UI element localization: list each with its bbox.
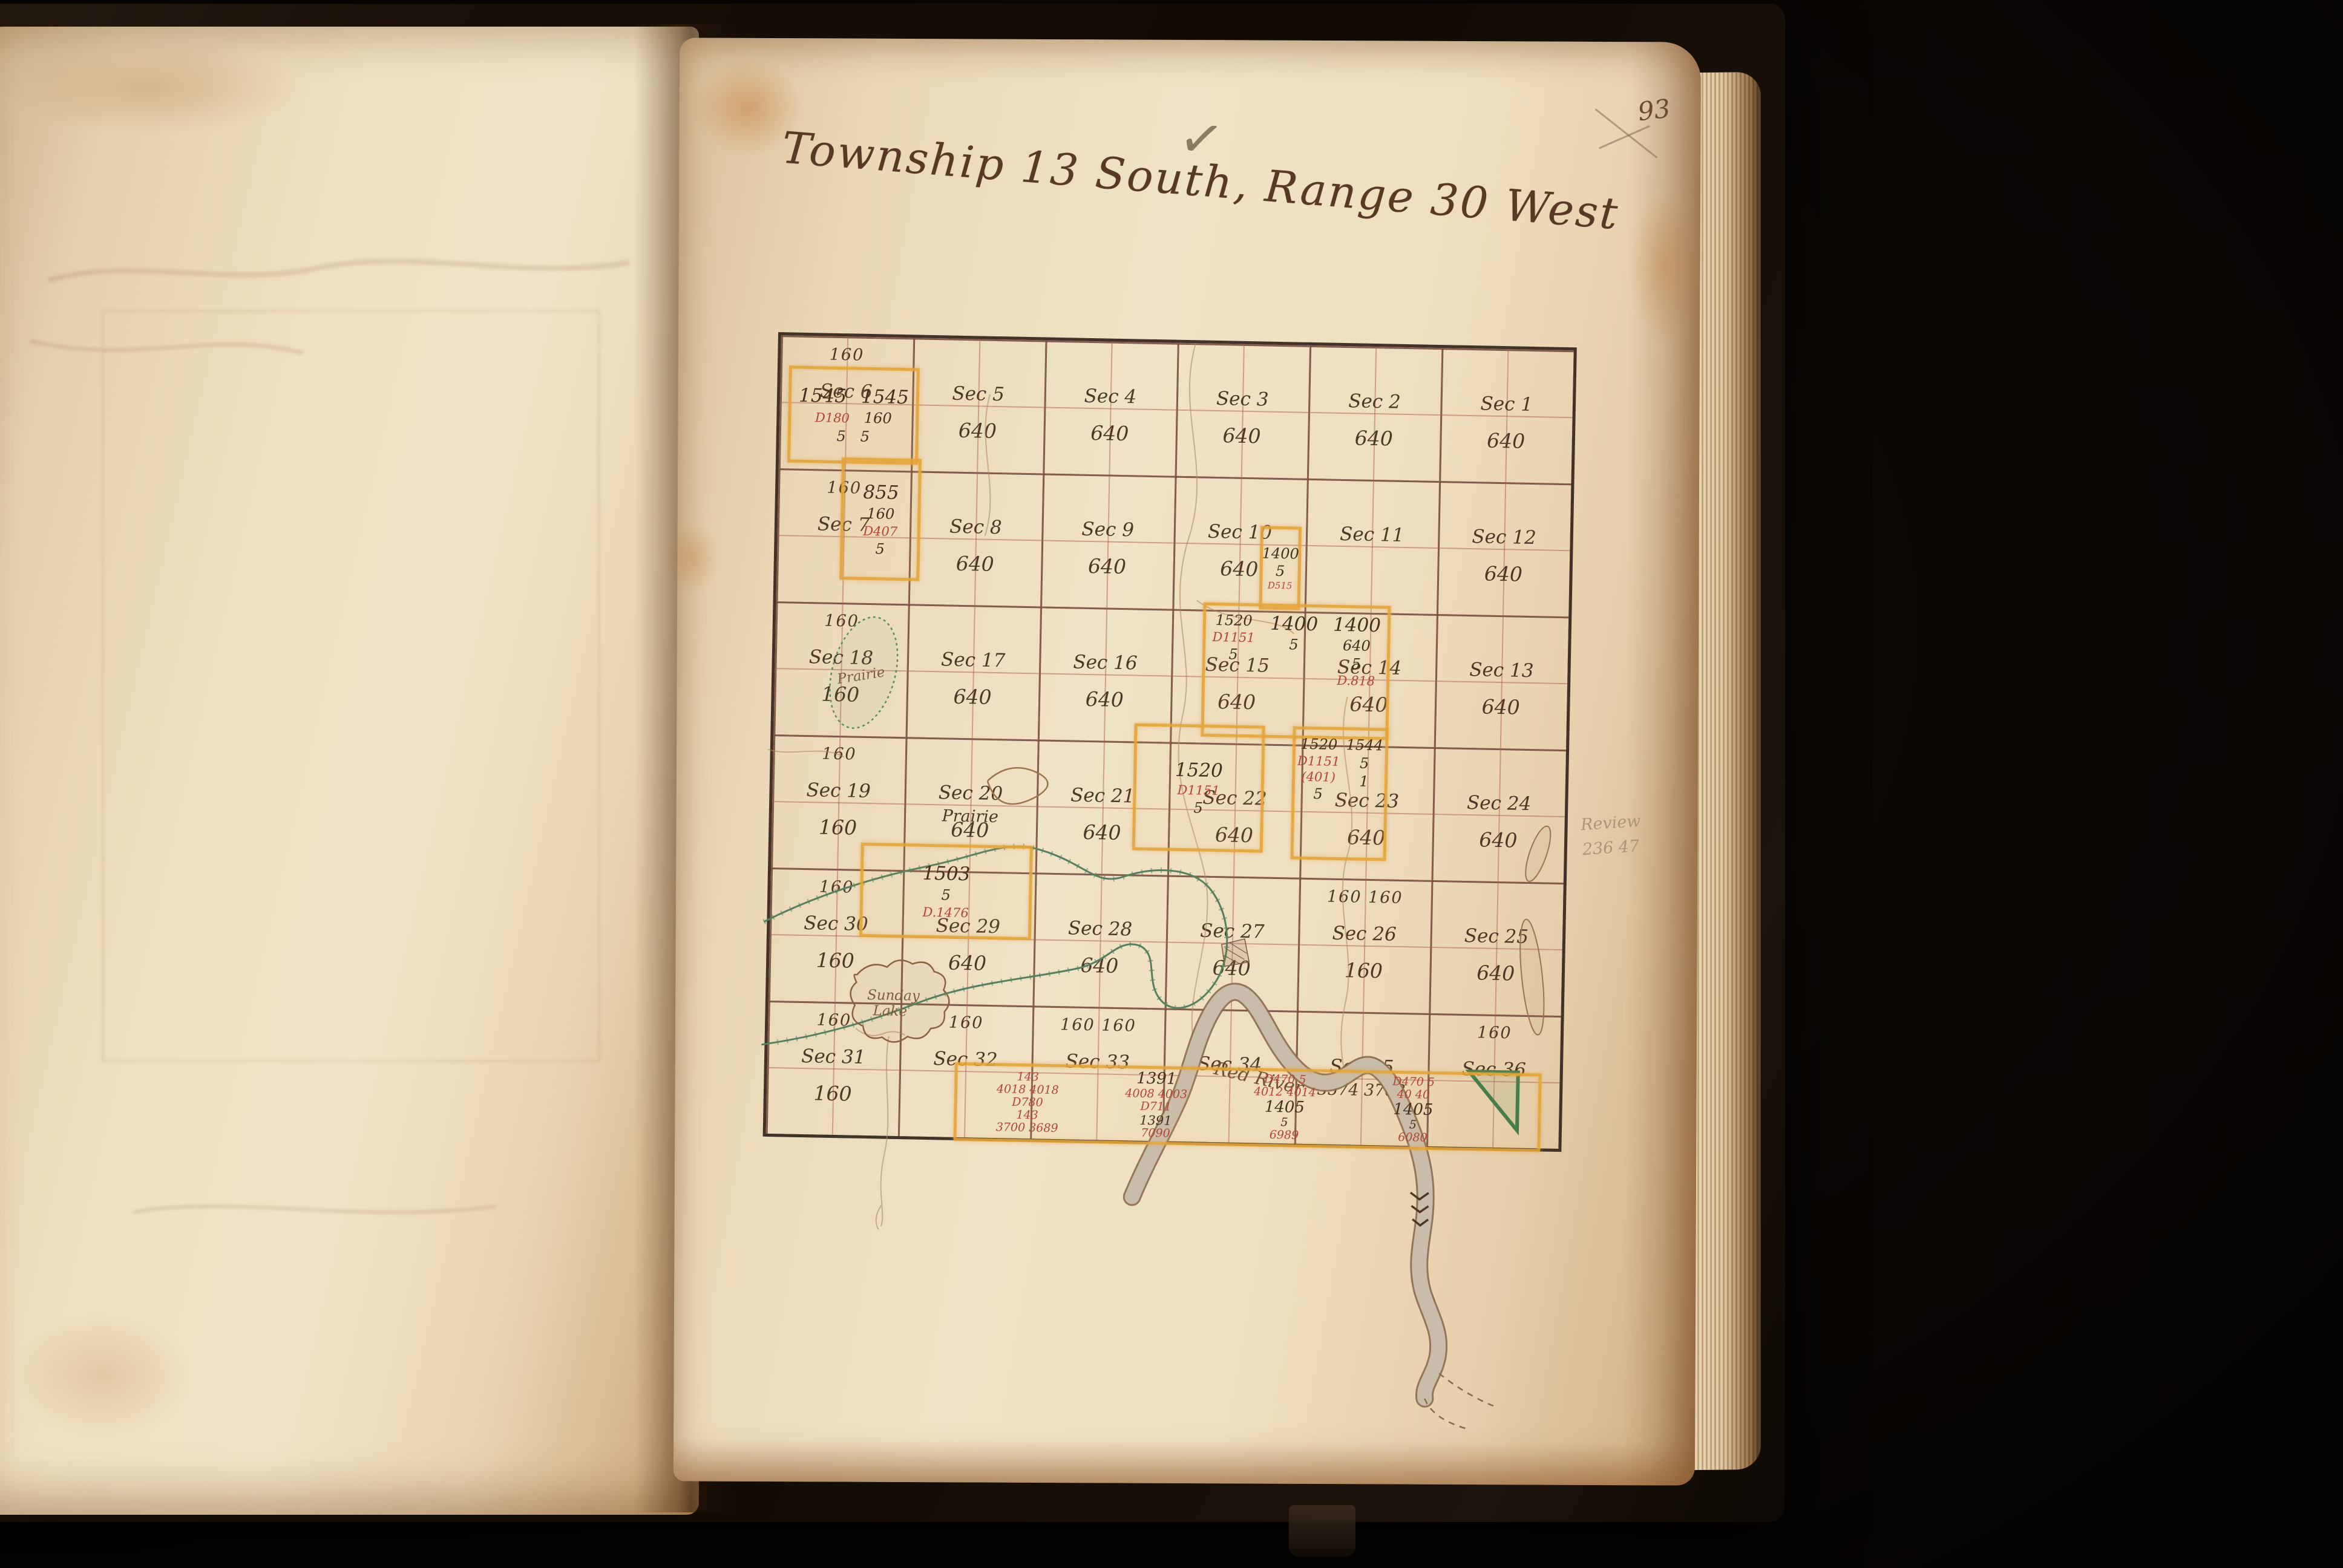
section-label: Sec 26 — [1298, 921, 1430, 946]
section-note — [1041, 543, 1173, 545]
section-label: Sec 12 — [1438, 525, 1570, 549]
section-cell: Sec 13 640 — [1434, 614, 1569, 750]
section-note — [767, 1070, 899, 1072]
strip-doc: D470 5 — [1264, 1074, 1306, 1086]
section-acreage: 160 — [767, 1080, 899, 1106]
section-label: Sec 24 — [1433, 791, 1565, 815]
strip-doc: D470 5 — [1392, 1076, 1435, 1089]
strip-total: 6989 — [1270, 1129, 1299, 1142]
claim-doc-number: D1151 — [1177, 783, 1220, 798]
section-note — [1039, 676, 1171, 678]
claim-column: 1544 5 1 — [1345, 736, 1383, 790]
claim-value: 1545 — [799, 385, 847, 408]
claim-column: 1520 D1151 5 — [1212, 612, 1256, 663]
strip-triangle-spacer — [1476, 1077, 1532, 1146]
claim-value: 1520 — [1215, 612, 1253, 629]
quarter-acreage: 160 160 — [1032, 1015, 1165, 1036]
section-note — [775, 670, 906, 673]
section-label: Sec 31 — [767, 1045, 900, 1069]
section-label: Sec 27 — [1166, 919, 1299, 943]
section-label: Sec 8 — [909, 515, 1042, 539]
section-acreage: 160 — [769, 947, 902, 973]
section-acreage: 640 — [1432, 827, 1564, 853]
section-cell: Sec 3 640 — [1175, 343, 1310, 479]
section-acreage: 640 — [1435, 694, 1567, 720]
quarter-acreage — [1040, 616, 1172, 618]
claim-value: 1400 — [1270, 613, 1319, 636]
quarter-acreage — [1045, 350, 1177, 352]
claim-value: 160 — [864, 410, 892, 427]
section-cell: 160 Sec 18 160 — [773, 601, 908, 737]
section-note — [1306, 547, 1438, 550]
section-label: Sec 19 — [772, 779, 905, 803]
section-note — [1308, 414, 1440, 417]
page-curl-shadow — [1622, 42, 1701, 1486]
section-label: Sec 2 — [1308, 389, 1441, 413]
section-note — [1433, 816, 1565, 818]
section-label: Sec 3 — [1176, 387, 1309, 411]
section-cell: Sec 28 640 — [1032, 872, 1167, 1008]
margin-pencil-note: Review 236 47 — [1580, 809, 1643, 862]
strip-value: 1391 — [1139, 1113, 1172, 1127]
claim-value: 5 — [875, 540, 885, 557]
section-acreage: 640 — [1165, 955, 1298, 981]
quarter-acreage: 160 — [768, 1010, 900, 1031]
quarter-acreage — [1441, 357, 1573, 359]
strip-value: 1391 — [1136, 1071, 1177, 1088]
section-note — [1298, 947, 1430, 949]
section-cell: 160 Sec 31 160 — [766, 1001, 901, 1136]
section-note — [1176, 412, 1308, 414]
quarter-acreage: 160 — [900, 1013, 1032, 1034]
quarter-acreage: 160 — [773, 743, 905, 765]
quarter-acreage — [1439, 490, 1571, 492]
section-acreage: 160 — [772, 814, 904, 840]
claim-doc-number: D515 — [1268, 580, 1293, 592]
claim-doc-number: D.1476 — [922, 905, 969, 920]
section-label: Sec 25 — [1430, 924, 1562, 949]
pencil-note-line2: 236 47 — [1582, 837, 1640, 859]
section-cell: Sec 5 640 — [911, 338, 1046, 473]
section-acreage: 640 — [1176, 423, 1308, 449]
section-cell: Sec 8 640 — [908, 471, 1043, 606]
strip-value: 1405 — [1265, 1099, 1305, 1117]
strip-value: 4008 4003 — [1125, 1088, 1187, 1101]
claim-value: 855 — [863, 481, 899, 503]
section-note — [1440, 417, 1572, 419]
claim-column: 1400 5 — [1270, 613, 1318, 654]
section-acreage: 640 — [1043, 420, 1176, 446]
section-acreage: 640 — [906, 684, 1039, 710]
strip-value: 5 — [1280, 1117, 1288, 1129]
section-cell: Sec 4 640 — [1043, 341, 1178, 476]
section-note — [912, 407, 1044, 410]
strip-value: 4018 4018 — [997, 1083, 1059, 1097]
section-cell: Sec 1 640 — [1439, 348, 1574, 483]
pencil-note-line1: Review — [1580, 812, 1641, 834]
claim-doc-number: D180 — [815, 410, 850, 425]
section-cell: Sec 27 640 — [1165, 875, 1300, 1011]
claim-value: 5 — [860, 428, 870, 445]
claim-value: 5 — [941, 886, 951, 903]
section-acreage: 640 — [1437, 561, 1570, 587]
claim-value: 5 — [1351, 655, 1361, 672]
strip-value: 143 — [1017, 1071, 1039, 1084]
strip-value: 1405 — [1393, 1102, 1434, 1119]
claim-strip-col: D470 5 4012 4014 1405 5 6989 — [1220, 1073, 1350, 1143]
section-cell: 160 160 Sec 26 160 — [1297, 878, 1432, 1013]
section-cell: Sec 9 640 — [1040, 473, 1175, 609]
section-label: Sec 18 — [775, 645, 907, 670]
claim-doc-number: (401) — [1301, 769, 1335, 785]
section-acreage: 640 — [1308, 425, 1440, 451]
quarter-acreage — [1167, 884, 1299, 887]
claim-strip-col: 143 4018 4018 D780 143 3700 3689 — [963, 1068, 1093, 1138]
section-label: Sec 5 — [912, 382, 1044, 406]
section-note — [1430, 949, 1562, 952]
strip-value: 143 — [1016, 1109, 1038, 1122]
quarter-acreage — [1035, 882, 1167, 884]
section-cell: Sec 2 640 — [1307, 345, 1442, 481]
strip-value: 5 — [1409, 1119, 1417, 1131]
claim-box-sec7: 855 160 D407 5 — [839, 457, 922, 581]
section-label: Sec 17 — [907, 648, 1040, 672]
claim-box-sec14: 1520 D1151 (401) 5 1544 5 1 — [1291, 726, 1389, 861]
section-acreage: 640 — [1033, 952, 1165, 978]
claim-box-sec29: 1503 5 D.1476 — [859, 843, 1033, 940]
section-acreage: 640 — [1429, 960, 1562, 986]
section-note — [1435, 683, 1567, 685]
strip-total: 7090 — [1141, 1127, 1170, 1140]
section-note — [1044, 410, 1176, 412]
claim-column: 1400 640 5 D.818 — [1332, 614, 1381, 688]
section-label: Sec 16 — [1039, 650, 1171, 675]
section-note — [909, 540, 1041, 543]
claim-doc-number: D407 — [863, 523, 897, 538]
claim-strip-south: 143 4018 4018 D780 143 3700 3689 1391 40… — [953, 1062, 1541, 1152]
quarter-acreage: 160 — [781, 345, 913, 366]
claim-doc-number: D1151 — [1212, 630, 1255, 645]
claim-value: 1503 — [922, 863, 971, 886]
claim-value: 5 — [836, 428, 846, 445]
quarter-acreage — [908, 613, 1040, 616]
quarter-acreage — [1178, 352, 1309, 354]
claim-value: 1400 — [1333, 614, 1381, 637]
quarter-acreage — [1431, 889, 1563, 892]
strip-total: 6080 — [1398, 1132, 1427, 1145]
section-label: Sec 1 — [1440, 392, 1573, 416]
claim-value: 1 — [1359, 773, 1369, 790]
claim-value: 5 — [1360, 755, 1369, 772]
section-note — [772, 803, 904, 806]
section-acreage — [1305, 558, 1437, 561]
section-note — [907, 673, 1039, 676]
section-cell: Sec 11 — [1305, 479, 1440, 614]
quarter-acreage: 160 — [776, 610, 908, 632]
strip-value: 40 40 — [1397, 1089, 1430, 1102]
page-number: 93 — [1636, 93, 1672, 126]
claim-value: 1520 — [1175, 759, 1224, 782]
claim-strip-col: 1391 4008 4003 D711 1391 7090 — [1091, 1070, 1221, 1140]
section-acreage: 640 — [911, 417, 1044, 443]
section-acreage: 640 — [1440, 428, 1572, 454]
section-acreage: 640 — [903, 817, 1036, 843]
strip-doc: D711 — [1140, 1100, 1171, 1113]
section-label: Sec 4 — [1044, 384, 1176, 408]
claim-strip-col: D470 5 40 40 1405 5 6080 — [1348, 1075, 1478, 1145]
section-note — [1166, 944, 1298, 947]
quarter-acreage — [911, 480, 1043, 483]
quarter-acreage — [1437, 623, 1568, 626]
section-cell: Sec 16 640 — [1038, 606, 1173, 742]
section-label: Sec 20 — [905, 781, 1037, 805]
right-page: Township 13 South, Range 30 West ✓ 93 Re… — [673, 38, 1701, 1485]
claim-doc-number: D.818 — [1337, 673, 1375, 688]
claim-value: 160 — [867, 505, 894, 522]
section-label: Sec 13 — [1435, 658, 1568, 682]
claim-box-sec6: 15451545 D180160 55 — [787, 365, 920, 465]
claim-value: 640 — [1343, 637, 1371, 655]
strip-doc: D780 — [1012, 1097, 1043, 1109]
section-note — [1034, 942, 1165, 944]
section-cell: Sec 12 640 — [1437, 481, 1571, 616]
claim-box-sec11-north: 1400 5 D515 — [1259, 526, 1302, 610]
claim-box-sec11: 1520 D1151 5 1400 5 1400 640 5 D.818 — [1201, 603, 1391, 740]
page-edge-browning — [673, 1439, 1695, 1485]
section-label: Sec 28 — [1034, 916, 1167, 941]
claim-value: 5 — [1313, 785, 1323, 802]
strip-total: 3700 3689 — [996, 1122, 1058, 1135]
section-cell: Sec 24 640 — [1432, 747, 1567, 883]
section-acreage: 640 — [909, 550, 1041, 577]
quarter-acreage — [913, 347, 1045, 350]
quarter-acreage — [905, 746, 1037, 749]
section-acreage: 640 — [1041, 553, 1173, 579]
section-note — [1438, 550, 1570, 552]
claim-value: 5 — [1228, 645, 1238, 662]
quarter-acreage — [1043, 483, 1175, 485]
strip-value: 4012 4014 — [1254, 1086, 1316, 1100]
claim-value: 5 — [1289, 636, 1299, 653]
quarter-acreage — [1164, 1018, 1296, 1020]
claim-box-sec15: 1520 D1151 5 — [1132, 723, 1265, 852]
section-label: Sec 11 — [1306, 522, 1438, 546]
quarter-acreage — [1175, 485, 1306, 488]
quarter-acreage: 160 — [1428, 1022, 1561, 1044]
section-cell: Sec 25 640 — [1429, 880, 1564, 1016]
section-acreage: 160 — [774, 681, 906, 707]
claim-column: 1520 D1151 (401) 5 — [1297, 736, 1340, 803]
claim-value: 1400 — [1262, 544, 1299, 562]
section-label: Sec 9 — [1041, 517, 1174, 541]
claim-value: 5 — [1193, 799, 1203, 816]
section-cell: Sec 17 640 — [906, 604, 1041, 739]
quarter-acreage — [1307, 488, 1439, 490]
left-page — [0, 27, 699, 1515]
section-acreage: 640 — [901, 950, 1034, 976]
quarter-acreage — [1309, 354, 1441, 357]
township-grid: 160 Sec 6 Sec 5 640 Sec 4 640 — [763, 332, 1577, 1152]
claim-value: 1545 — [861, 386, 909, 409]
ghost-bleedthrough — [0, 27, 699, 1515]
claim-doc-number: D1151 — [1297, 754, 1340, 769]
quarter-acreage — [1297, 1020, 1429, 1022]
quarter-acreage: 160 160 — [1299, 887, 1431, 908]
section-acreage: 160 — [1297, 958, 1430, 984]
claim-value: 1520 — [1300, 736, 1338, 753]
book-clasp — [1289, 1505, 1355, 1557]
quarter-acreage — [1434, 756, 1565, 759]
claim-value: 1544 — [1346, 736, 1383, 754]
rapids-marks — [1410, 1192, 1429, 1226]
section-acreage: 640 — [1038, 686, 1171, 712]
claim-value: 5 — [1276, 563, 1285, 580]
photo-stage: Township 13 South, Range 30 West ✓ 93 Re… — [0, 0, 2343, 1568]
